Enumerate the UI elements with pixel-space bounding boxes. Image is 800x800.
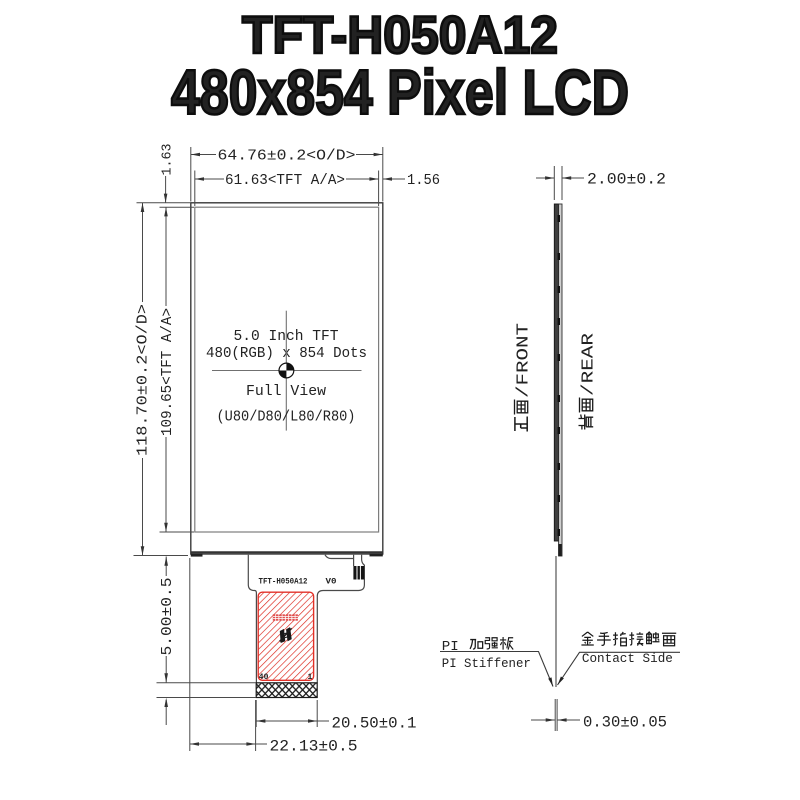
svg-text:PI: PI: [442, 640, 459, 655]
svg-text:1.56: 1.56: [407, 172, 440, 189]
svg-text:/FRONT: /FRONT: [515, 323, 534, 398]
svg-text:/REAR: /REAR: [580, 333, 599, 396]
svg-text:TFT-H050A12: TFT-H050A12: [242, 6, 558, 65]
svg-text:PI Stiffener: PI Stiffener: [442, 656, 531, 671]
svg-text:V0: V0: [326, 577, 337, 587]
svg-text:0.30±0.05: 0.30±0.05: [583, 713, 667, 731]
svg-text:(U80/D80/L80/R80): (U80/D80/L80/R80): [217, 410, 356, 426]
svg-text:Full View: Full View: [246, 384, 326, 400]
svg-text:5.00±0.5: 5.00±0.5: [159, 578, 176, 656]
svg-text:61.63<TFT A/A>: 61.63<TFT A/A>: [225, 172, 345, 189]
svg-text:2.00±0.2: 2.00±0.2: [587, 171, 666, 189]
svg-text:109.65<TFT A/A>: 109.65<TFT A/A>: [159, 308, 176, 436]
svg-text:1.63: 1.63: [159, 144, 175, 176]
svg-text:480x854 Pixel LCD: 480x854 Pixel LCD: [171, 58, 629, 128]
svg-text:22.13±0.5: 22.13±0.5: [270, 737, 358, 755]
svg-text:40: 40: [259, 673, 269, 682]
svg-text:Contact Side: Contact Side: [582, 651, 673, 666]
svg-text:TFT-H050A12: TFT-H050A12: [259, 577, 308, 587]
svg-text:20.50±0.1: 20.50±0.1: [332, 714, 417, 732]
svg-text:64.76±0.2<O/D>: 64.76±0.2<O/D>: [218, 148, 356, 165]
svg-text:118.70±0.2<O/D>: 118.70±0.2<O/D>: [135, 304, 152, 456]
svg-text:1: 1: [308, 673, 313, 682]
